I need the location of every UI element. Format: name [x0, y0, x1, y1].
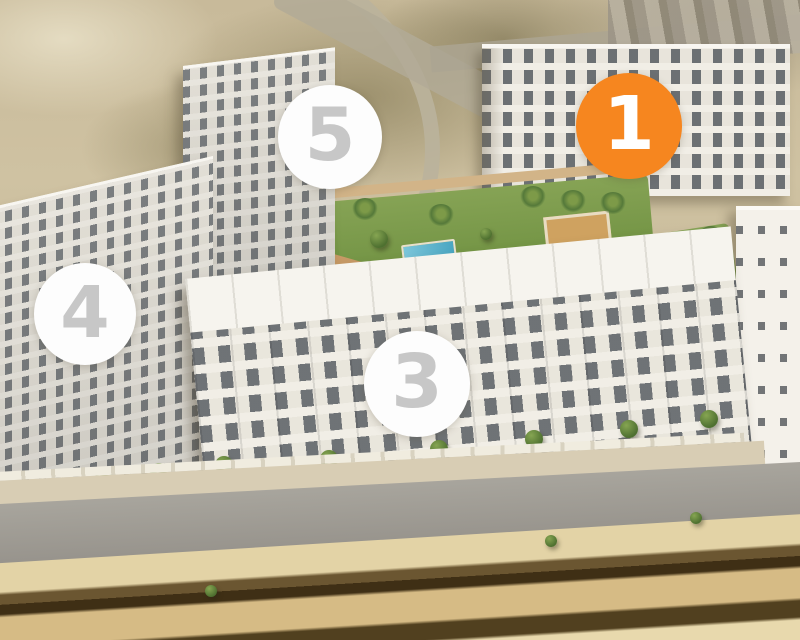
street-tree	[700, 410, 718, 428]
aerial-render: 1 5 4 3	[0, 0, 800, 640]
garden-tree	[480, 228, 492, 240]
palm-tree	[560, 190, 586, 212]
marker-label: 1	[603, 87, 655, 161]
marker-label: 4	[60, 277, 109, 348]
phase-marker-1[interactable]: 1	[576, 73, 682, 179]
palm-tree	[520, 186, 546, 208]
palm-tree	[352, 198, 378, 220]
phase-marker-5[interactable]: 5	[278, 85, 382, 189]
scrub-bush	[545, 535, 557, 547]
garden-tree	[370, 230, 388, 248]
scrub-bush	[690, 512, 702, 524]
palm-tree	[428, 204, 454, 226]
marker-label: 5	[305, 99, 356, 172]
palm-tree	[600, 192, 626, 214]
phase-marker-3[interactable]: 3	[364, 331, 470, 437]
phase-marker-4[interactable]: 4	[34, 263, 136, 365]
marker-label: 3	[391, 345, 443, 419]
street-tree	[620, 420, 638, 438]
scrub-bush	[205, 585, 217, 597]
